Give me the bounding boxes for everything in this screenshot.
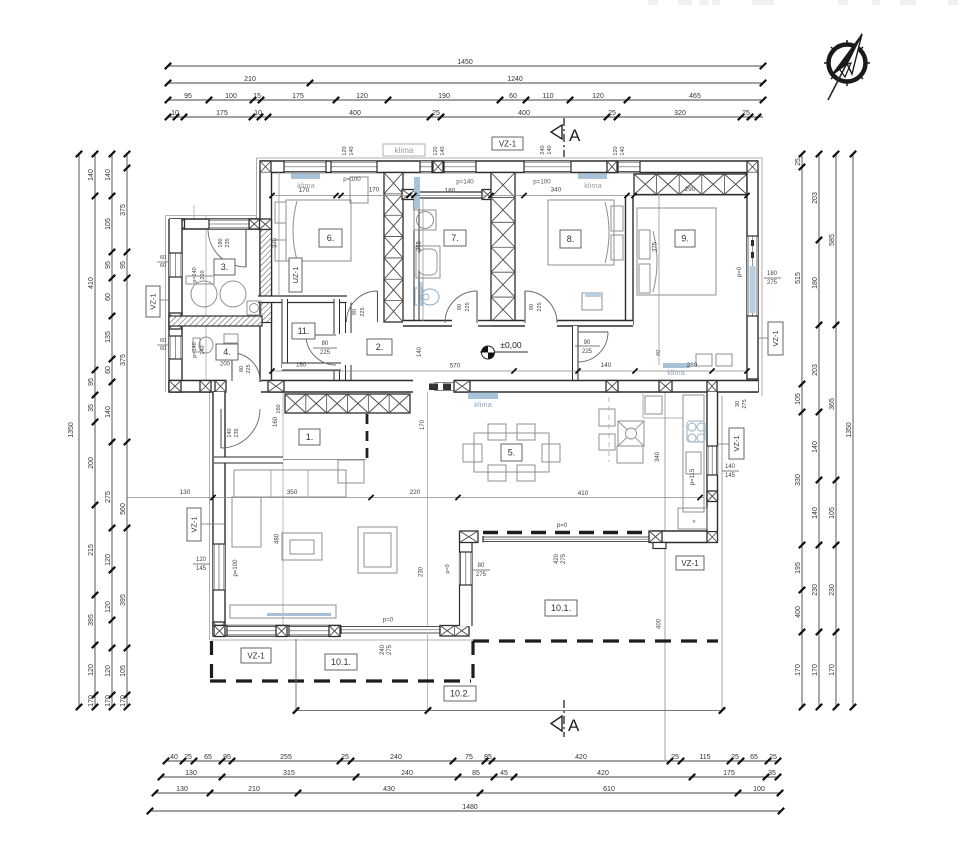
svg-text:klima: klima [474, 400, 492, 409]
svg-text:515: 515 [795, 272, 802, 284]
svg-text:420: 420 [554, 553, 560, 564]
svg-text:195: 195 [795, 562, 802, 574]
svg-text:p=100: p=100 [343, 176, 361, 183]
svg-text:240: 240 [390, 754, 402, 761]
svg-text:10.1.: 10.1. [551, 603, 571, 613]
svg-text:p=100: p=100 [233, 559, 239, 577]
svg-text:VZ-1: VZ-1 [149, 293, 158, 309]
svg-text:275: 275 [742, 399, 748, 408]
svg-text:160: 160 [273, 416, 279, 427]
svg-text:180: 180 [218, 238, 224, 247]
svg-text:A: A [569, 126, 581, 145]
svg-text:90: 90 [529, 304, 535, 310]
svg-text:60: 60 [160, 338, 166, 344]
svg-text:315: 315 [283, 770, 295, 777]
svg-text:400: 400 [657, 618, 663, 629]
svg-text:240: 240 [540, 145, 546, 154]
svg-text:410: 410 [578, 490, 589, 497]
svg-text:203: 203 [812, 364, 819, 376]
svg-text:140: 140 [200, 345, 206, 354]
svg-text:560: 560 [120, 503, 127, 515]
svg-text:25: 25 [731, 754, 739, 761]
svg-text:140: 140 [88, 169, 95, 181]
svg-text:375: 375 [120, 354, 127, 366]
svg-text:200: 200 [88, 457, 95, 469]
svg-text:170: 170 [829, 664, 836, 676]
svg-text:9.: 9. [681, 234, 689, 244]
svg-text:230: 230 [812, 584, 819, 596]
svg-text:365: 365 [417, 240, 423, 251]
svg-text:95: 95 [223, 754, 231, 761]
svg-text:115: 115 [699, 754, 710, 761]
svg-text:2.: 2. [376, 342, 384, 352]
svg-text:400: 400 [795, 606, 802, 618]
svg-text:7.: 7. [451, 233, 459, 243]
svg-text:100: 100 [753, 786, 765, 793]
svg-text:140: 140 [601, 362, 612, 369]
svg-text:420: 420 [597, 770, 609, 777]
svg-text:145: 145 [196, 566, 207, 572]
svg-text:275: 275 [561, 553, 567, 564]
svg-text:10.2.: 10.2. [450, 689, 470, 699]
svg-text:140: 140 [440, 146, 446, 155]
svg-text:160: 160 [276, 404, 282, 413]
svg-text:170: 170 [369, 187, 380, 194]
svg-text:200: 200 [220, 362, 231, 368]
svg-text:585: 585 [829, 234, 836, 246]
svg-text:UZ-1: UZ-1 [291, 267, 300, 284]
svg-text:klima: klima [395, 146, 414, 155]
svg-text:180: 180 [767, 271, 778, 277]
svg-text:60: 60 [160, 263, 166, 269]
svg-text:130: 130 [180, 489, 191, 496]
svg-text:140: 140 [812, 441, 819, 453]
svg-text:275: 275 [476, 572, 487, 578]
svg-text:105: 105 [795, 393, 802, 405]
svg-text:4.: 4. [223, 347, 231, 357]
svg-text:120: 120 [433, 146, 439, 155]
svg-text:400: 400 [349, 110, 361, 117]
svg-text:140: 140 [812, 507, 819, 519]
svg-text:*: * [692, 518, 696, 528]
svg-text:120: 120 [592, 93, 604, 100]
svg-text:225: 225 [320, 350, 331, 356]
svg-text:375: 375 [273, 237, 279, 248]
svg-text:140: 140 [105, 169, 112, 181]
svg-text:p=140: p=140 [456, 179, 474, 186]
svg-text:375: 375 [120, 204, 127, 216]
svg-text:210: 210 [248, 786, 260, 793]
svg-text:25: 25 [671, 754, 679, 761]
svg-text:210: 210 [200, 270, 206, 279]
svg-text:25: 25 [184, 754, 192, 761]
svg-text:140: 140 [349, 146, 355, 155]
svg-text:120: 120 [356, 93, 368, 100]
svg-text:140: 140 [105, 406, 112, 418]
svg-text:30: 30 [735, 401, 741, 407]
svg-text:365: 365 [829, 398, 836, 410]
svg-text:130: 130 [185, 770, 197, 777]
svg-text:60: 60 [160, 346, 166, 352]
svg-text:85: 85 [484, 754, 492, 761]
svg-text:170: 170 [105, 695, 112, 707]
svg-text:235: 235 [225, 238, 231, 247]
svg-text:230: 230 [419, 566, 425, 577]
svg-text:400: 400 [518, 110, 530, 117]
svg-text:203: 203 [812, 192, 819, 204]
svg-text:5.: 5. [508, 448, 516, 458]
svg-text:p=140: p=140 [192, 267, 198, 282]
svg-text:140: 140 [547, 145, 553, 154]
svg-text:25: 25 [608, 110, 616, 117]
svg-text:75: 75 [465, 754, 473, 761]
svg-text:145: 145 [725, 473, 736, 479]
svg-text:350: 350 [287, 489, 298, 496]
svg-text:25: 25 [742, 110, 750, 117]
svg-text:290: 290 [685, 186, 696, 193]
svg-text:100: 100 [225, 93, 237, 100]
svg-text:140: 140 [417, 346, 423, 357]
svg-text:80: 80 [478, 563, 485, 569]
svg-text:p=0: p=0 [383, 618, 394, 624]
svg-text:395: 395 [88, 614, 95, 626]
svg-text:120: 120 [196, 557, 207, 563]
svg-text:255: 255 [280, 754, 292, 761]
svg-text:10: 10 [254, 110, 262, 117]
svg-text:170: 170 [299, 187, 310, 194]
svg-text:VZ-1: VZ-1 [247, 651, 265, 660]
svg-text:120: 120 [105, 554, 112, 566]
svg-text:10: 10 [171, 110, 179, 117]
svg-text:p=100: p=100 [533, 179, 551, 186]
svg-text:65: 65 [750, 754, 758, 761]
svg-text:190: 190 [438, 93, 450, 100]
svg-text:330: 330 [795, 474, 802, 486]
svg-text:40: 40 [170, 754, 178, 761]
svg-text:6.: 6. [327, 233, 335, 243]
svg-text:160: 160 [296, 363, 307, 369]
svg-text:420: 420 [575, 754, 587, 761]
svg-text:10.1.: 10.1. [331, 657, 351, 667]
svg-text:95: 95 [184, 93, 192, 100]
svg-text:225: 225 [465, 302, 471, 311]
svg-text:p=115: p=115 [690, 468, 696, 485]
svg-text:170: 170 [88, 695, 95, 707]
svg-text:±0,00: ±0,00 [500, 340, 521, 350]
svg-text:VZ-1: VZ-1 [771, 330, 780, 346]
svg-text:45: 45 [500, 770, 508, 777]
svg-text:p=0: p=0 [737, 266, 743, 277]
svg-text:85: 85 [472, 770, 480, 777]
svg-text:180: 180 [445, 188, 456, 195]
svg-text:105: 105 [120, 665, 127, 677]
svg-text:120: 120 [88, 664, 95, 676]
svg-text:25: 25 [769, 754, 777, 761]
svg-text:170: 170 [420, 419, 426, 430]
svg-text:1450: 1450 [457, 59, 473, 66]
svg-text:340: 340 [655, 451, 661, 462]
svg-text:60: 60 [105, 366, 112, 374]
svg-text:1350: 1350 [846, 422, 853, 438]
svg-text:610: 610 [603, 786, 615, 793]
svg-text:340: 340 [551, 187, 562, 194]
svg-text:275: 275 [105, 491, 112, 503]
svg-text:15: 15 [253, 93, 261, 100]
svg-text:140: 140 [620, 146, 626, 155]
svg-text:465: 465 [689, 93, 701, 100]
svg-text:25: 25 [341, 754, 349, 761]
svg-text:80: 80 [239, 366, 245, 372]
svg-text:p=0: p=0 [557, 523, 568, 529]
svg-text:8.: 8. [567, 234, 575, 244]
svg-text:60: 60 [105, 293, 112, 301]
svg-text:95: 95 [105, 261, 112, 269]
svg-text:90: 90 [584, 340, 591, 346]
svg-text:235: 235 [234, 428, 240, 437]
svg-text:120: 120 [105, 665, 112, 677]
svg-text:120: 120 [613, 146, 619, 155]
svg-text:90: 90 [457, 304, 463, 310]
svg-text:VZ-1: VZ-1 [681, 559, 699, 568]
svg-text:90: 90 [352, 309, 358, 315]
svg-text:65: 65 [204, 754, 212, 761]
svg-text:220: 220 [410, 489, 421, 496]
svg-text:175: 175 [723, 770, 735, 777]
svg-text:410: 410 [88, 277, 95, 289]
svg-text:275: 275 [767, 280, 778, 286]
svg-text:60: 60 [509, 93, 517, 100]
svg-text:120: 120 [105, 601, 112, 613]
svg-text:80: 80 [322, 341, 329, 347]
svg-text:1.: 1. [306, 432, 314, 442]
svg-text:225: 225 [246, 364, 252, 373]
svg-text:1350: 1350 [68, 422, 75, 438]
svg-text:130: 130 [176, 786, 188, 793]
svg-text:110: 110 [542, 93, 553, 100]
svg-text:35: 35 [88, 404, 95, 412]
svg-text:klima: klima [667, 368, 685, 377]
svg-text:240: 240 [380, 644, 386, 655]
svg-text:95: 95 [120, 261, 127, 269]
svg-text:570: 570 [450, 363, 461, 370]
svg-text:210: 210 [244, 76, 256, 83]
svg-text:VZ-1: VZ-1 [499, 139, 517, 148]
svg-text:430: 430 [383, 786, 395, 793]
svg-text:1480: 1480 [462, 804, 478, 811]
svg-text:395: 395 [120, 594, 127, 606]
svg-text:225: 225 [360, 307, 366, 316]
svg-text:11.: 11. [298, 326, 310, 336]
svg-text:225: 225 [582, 349, 593, 355]
svg-text:VZ-1: VZ-1 [190, 516, 199, 532]
svg-text:klima: klima [584, 181, 602, 190]
svg-text:p=140: p=140 [192, 342, 198, 357]
svg-text:60: 60 [160, 255, 166, 261]
svg-text:25: 25 [795, 158, 802, 166]
svg-text:230: 230 [829, 584, 836, 596]
svg-text:180: 180 [812, 277, 819, 289]
svg-text:1240: 1240 [507, 76, 523, 83]
svg-text:p=0: p=0 [445, 564, 451, 573]
svg-text:175: 175 [292, 93, 304, 100]
svg-text:275: 275 [387, 644, 393, 655]
svg-text:225: 225 [537, 302, 543, 311]
svg-text:170: 170 [812, 664, 819, 676]
svg-text:25: 25 [432, 110, 440, 117]
svg-text:105: 105 [829, 507, 836, 519]
svg-text:170: 170 [120, 695, 127, 707]
svg-text:105: 105 [105, 218, 112, 230]
svg-text:240: 240 [401, 770, 413, 777]
svg-text:375: 375 [653, 241, 659, 252]
svg-text:140: 140 [725, 464, 736, 470]
svg-text:35: 35 [768, 770, 776, 777]
svg-text:280: 280 [687, 362, 698, 369]
svg-text:3.: 3. [221, 262, 229, 272]
svg-text:480: 480 [275, 533, 281, 544]
svg-text:135: 135 [105, 331, 112, 343]
svg-text:215: 215 [88, 544, 95, 556]
svg-text:95: 95 [88, 378, 95, 386]
svg-text:170: 170 [795, 664, 802, 676]
svg-text:120: 120 [342, 146, 348, 155]
svg-text:320: 320 [674, 110, 686, 117]
svg-text:A: A [568, 716, 580, 735]
svg-text:VZ-1: VZ-1 [732, 435, 741, 451]
svg-text:175: 175 [216, 110, 228, 117]
svg-text:140: 140 [227, 428, 233, 437]
